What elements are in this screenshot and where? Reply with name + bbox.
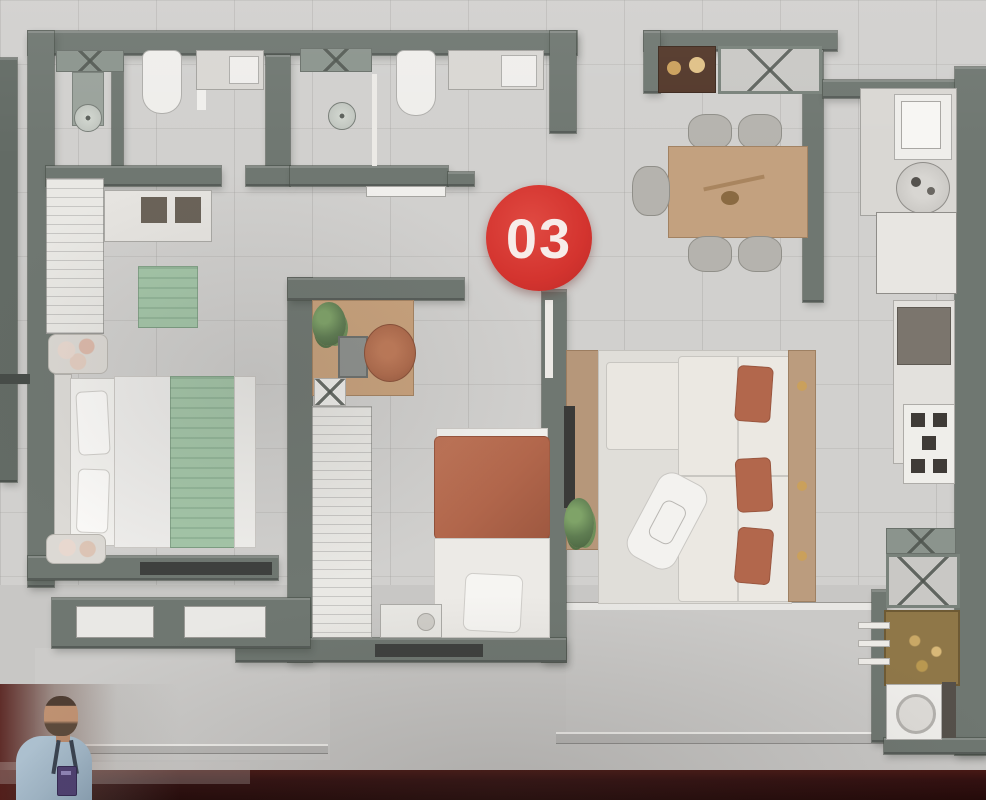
grill-icon xyxy=(884,610,960,686)
bed-second xyxy=(434,428,548,636)
presenter-head xyxy=(44,696,78,736)
sheet-master xyxy=(114,376,172,548)
badge-tag-line xyxy=(61,771,71,775)
bowl-decor-2 xyxy=(689,57,705,73)
pillow-1 xyxy=(75,390,110,456)
sideboard-decor-3 xyxy=(797,551,807,561)
door-leaf-bath2 xyxy=(366,186,446,197)
sideboard-decor-1 xyxy=(797,381,807,391)
shower-partition-2 xyxy=(372,74,377,166)
sofa-chaise xyxy=(606,362,686,450)
sofa-pillow-1 xyxy=(734,365,774,423)
dining-chair-bottom-2 xyxy=(738,236,782,272)
dining-table xyxy=(668,146,808,238)
balcony-right-railing xyxy=(556,732,890,744)
closet-icon-service xyxy=(886,528,956,554)
wall-neighbor-unit xyxy=(0,58,17,482)
burner-center xyxy=(922,436,936,450)
flowers-decor-2 xyxy=(46,534,106,564)
closet-icon xyxy=(56,50,124,72)
floor-plan-canvas: 03 xyxy=(0,0,986,800)
chair-office xyxy=(364,324,416,382)
wall-bath-divider xyxy=(266,55,290,169)
dining-chair-top-2 xyxy=(738,114,782,150)
vanity-2 xyxy=(448,50,544,90)
wall-balcony-left-parapet xyxy=(52,598,310,648)
wall-hall-right xyxy=(550,31,576,133)
cooktop-4-burner xyxy=(903,404,955,484)
unit-number-badge[interactable]: 03 xyxy=(486,185,592,291)
toilet-icon-1 xyxy=(142,50,182,114)
burner-3 xyxy=(911,459,925,473)
kitchen-island xyxy=(876,212,957,294)
washer-drum xyxy=(896,694,936,734)
sink-icon-2 xyxy=(501,55,537,87)
basin-detail-1 xyxy=(911,177,921,187)
closet-icon-2 xyxy=(300,48,372,72)
window-master xyxy=(140,562,272,575)
bed-foot-master xyxy=(234,376,256,548)
sofa-pillow-3 xyxy=(734,527,775,586)
skewer-2 xyxy=(858,640,890,647)
shaft-closet-service xyxy=(886,554,960,608)
drawer-unit-office xyxy=(314,378,346,406)
nightstand-decor xyxy=(417,613,435,631)
dresser-box-2 xyxy=(175,197,201,223)
burner-4 xyxy=(933,459,947,473)
dresser-master xyxy=(104,190,212,242)
service-dark-panel xyxy=(942,682,956,738)
nightstand-office xyxy=(380,604,442,638)
table-decor-branch xyxy=(703,175,764,192)
wardrobe-master xyxy=(46,178,104,334)
badge-tag xyxy=(57,766,77,796)
pillow-2 xyxy=(76,468,110,533)
coffee-table-tray xyxy=(646,498,689,547)
wall-office-top xyxy=(288,278,464,300)
burner-1 xyxy=(911,413,925,427)
vanity-1 xyxy=(196,50,264,90)
skewer-3 xyxy=(858,658,890,665)
bench-green xyxy=(138,266,198,328)
bed-master xyxy=(54,374,254,548)
dining-chair-bottom-1 xyxy=(688,236,732,272)
table-decor-center xyxy=(721,191,739,205)
sofa-pillow-2 xyxy=(735,457,774,513)
round-basin xyxy=(896,162,950,214)
unit-number-label: 03 xyxy=(506,206,572,271)
shower-head-icon xyxy=(74,104,102,132)
cabinet-dark-dining xyxy=(658,46,716,93)
oven-icon xyxy=(897,307,951,365)
kitchen-sink xyxy=(894,94,952,160)
sideboard-living xyxy=(788,350,816,602)
wall-exterior-stub xyxy=(0,374,30,384)
sideboard-decor-2 xyxy=(797,481,807,491)
sink-icon-1 xyxy=(229,56,259,84)
toilet-icon-2 xyxy=(396,50,436,116)
shower-head-icon-2 xyxy=(328,102,356,130)
wall-bath1-inner xyxy=(112,55,123,169)
bowl-decor-1 xyxy=(667,61,681,75)
pillows-master xyxy=(70,378,116,546)
dresser-box-1 xyxy=(141,197,167,223)
door-office xyxy=(545,300,553,378)
blanket-green xyxy=(170,376,236,548)
tv-icon xyxy=(564,406,575,508)
window-parapet-2 xyxy=(184,606,266,638)
shaft-closet-dining xyxy=(718,46,822,94)
presenter-figure xyxy=(0,688,120,800)
wardrobe-office xyxy=(312,406,372,638)
burner-2 xyxy=(933,413,947,427)
duvet-terracotta xyxy=(434,436,550,540)
window-office xyxy=(375,644,483,657)
dining-chair-top-1 xyxy=(688,114,732,150)
wall-service-bottom xyxy=(884,738,986,754)
sink-basin xyxy=(901,101,941,149)
wall-bath2-bottom xyxy=(290,166,448,186)
basin-detail-2 xyxy=(927,187,935,195)
washing-machine-icon xyxy=(886,684,942,740)
plant-living-icon xyxy=(564,498,594,548)
skewer-1 xyxy=(858,622,890,629)
window-parapet-1 xyxy=(76,606,154,638)
pillow-second xyxy=(463,573,524,634)
wall-bath2-step xyxy=(448,172,474,186)
flowers-decor-1 xyxy=(48,334,108,374)
dining-chair-left xyxy=(632,166,670,216)
wall-baths-bottom-b xyxy=(246,166,290,186)
